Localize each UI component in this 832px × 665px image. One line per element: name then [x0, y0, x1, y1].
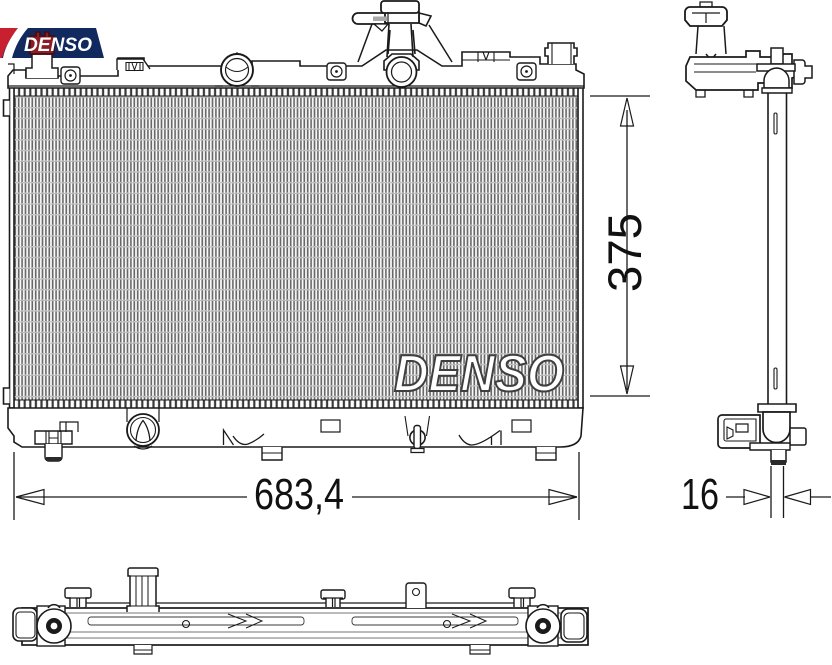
svg-text:375: 375	[598, 213, 651, 292]
svg-text:DENSO: DENSO	[24, 35, 92, 56]
svg-text:683,4: 683,4	[254, 470, 344, 519]
svg-text:16: 16	[681, 470, 719, 519]
svg-text:DENSO: DENSO	[394, 345, 564, 403]
